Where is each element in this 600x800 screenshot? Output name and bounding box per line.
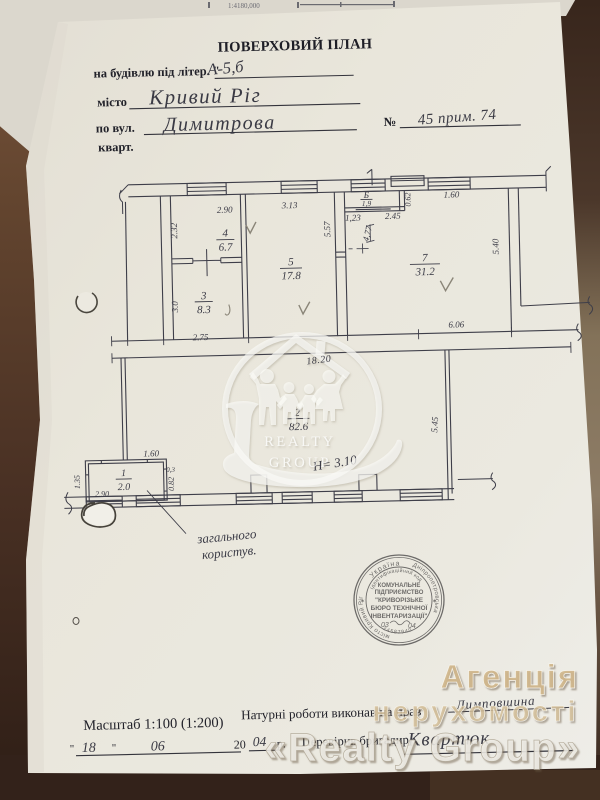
svg-text:31.2: 31.2 bbox=[414, 266, 435, 278]
svg-text:2.75: 2.75 bbox=[193, 332, 209, 342]
svg-text:№: № bbox=[384, 115, 397, 129]
svg-text:✶: ✶ bbox=[360, 598, 365, 605]
svg-text:04: 04 bbox=[408, 623, 416, 630]
svg-text:А-5,б: А-5,б bbox=[205, 57, 245, 79]
svg-text:кварт.: кварт. bbox=[98, 140, 134, 155]
svg-text:ІНВЕНТАРИЗАЦІЇ": ІНВЕНТАРИЗАЦІЇ" bbox=[371, 612, 428, 620]
svg-text:нерухомості: нерухомості bbox=[372, 696, 578, 728]
svg-text:20: 20 bbox=[234, 737, 246, 751]
svg-text:1: 1 bbox=[121, 468, 126, 479]
svg-text:по вул.: по вул. bbox=[96, 121, 135, 136]
svg-text:1.60: 1.60 bbox=[143, 448, 159, 458]
svg-text:Димитрова: Димитрова bbox=[161, 111, 275, 136]
svg-text:06: 06 bbox=[151, 739, 165, 754]
svg-text:БЮРО ТЕХНІЧНОЇ: БЮРО ТЕХНІЧНОЇ bbox=[371, 604, 428, 612]
svg-text:03: 03 bbox=[381, 622, 389, 629]
svg-text:5.45: 5.45 bbox=[429, 416, 440, 433]
svg-text:ПІДПРИЄМСТВО: ПІДПРИЄМСТВО bbox=[375, 590, 424, 596]
svg-text:1,9: 1,9 bbox=[362, 199, 372, 208]
svg-text:18: 18 bbox=[82, 741, 96, 756]
svg-text:Кривий Ріг: Кривий Ріг bbox=[148, 83, 262, 110]
svg-text:3: 3 bbox=[200, 290, 207, 302]
svg-text:✶: ✶ bbox=[432, 598, 437, 605]
svg-text:17.8: 17.8 bbox=[281, 270, 301, 282]
svg-text:1.60: 1.60 bbox=[443, 189, 459, 199]
svg-text:ПОВЕРХОВИЙ ПЛАН: ПОВЕРХОВИЙ ПЛАН bbox=[217, 35, 372, 56]
svg-text:5: 5 bbox=[288, 256, 294, 268]
svg-text:6.06: 6.06 bbox=[448, 319, 464, 329]
svg-text:3.13: 3.13 bbox=[281, 200, 298, 210]
svg-text:на будівлю під літер. ": на будівлю під літер. " bbox=[93, 64, 220, 81]
svg-text:1:4180,000: 1:4180,000 bbox=[228, 2, 260, 10]
svg-text:Агенція: Агенція bbox=[440, 658, 579, 695]
svg-text:3.0: 3.0 bbox=[170, 301, 180, 314]
svg-text:місто: місто bbox=[97, 95, 127, 110]
svg-text:«Realty Group»: «Realty Group» bbox=[264, 726, 581, 770]
svg-text:КОМУНАЛЬНЕ: КОМУНАЛЬНЕ bbox=[378, 583, 421, 589]
svg-text:5.40: 5.40 bbox=[490, 238, 500, 254]
svg-text:7: 7 bbox=[422, 252, 428, 264]
svg-text:1,23: 1,23 bbox=[345, 213, 361, 223]
svg-text:2.32: 2.32 bbox=[169, 222, 179, 238]
svg-text:Масштаб 1:100 (1:200): Масштаб 1:100 (1:200) bbox=[83, 715, 224, 734]
svg-text:2.0: 2.0 bbox=[118, 482, 131, 493]
svg-text:GROUP: GROUP bbox=[269, 455, 331, 471]
svg-text:": " bbox=[70, 743, 75, 755]
svg-text:": " bbox=[112, 742, 117, 754]
svg-text:REALTY: REALTY bbox=[264, 434, 335, 450]
svg-text:4: 4 bbox=[222, 228, 228, 240]
svg-text:5.57: 5.57 bbox=[322, 221, 332, 237]
svg-text:2.90: 2.90 bbox=[217, 204, 233, 214]
svg-text:8.3: 8.3 bbox=[197, 304, 212, 316]
svg-text:"КРИВОРІЗЬКЕ: "КРИВОРІЗЬКЕ bbox=[375, 597, 424, 604]
svg-text:2.45: 2.45 bbox=[385, 211, 401, 221]
svg-text:2.90: 2.90 bbox=[95, 489, 109, 498]
svg-text:0.82: 0.82 bbox=[167, 477, 176, 491]
svg-text:6.7: 6.7 bbox=[219, 241, 234, 253]
svg-text:1.35: 1.35 bbox=[73, 475, 82, 489]
svg-text:0.62: 0.62 bbox=[403, 192, 412, 206]
svg-text:0,3: 0,3 bbox=[166, 466, 175, 474]
